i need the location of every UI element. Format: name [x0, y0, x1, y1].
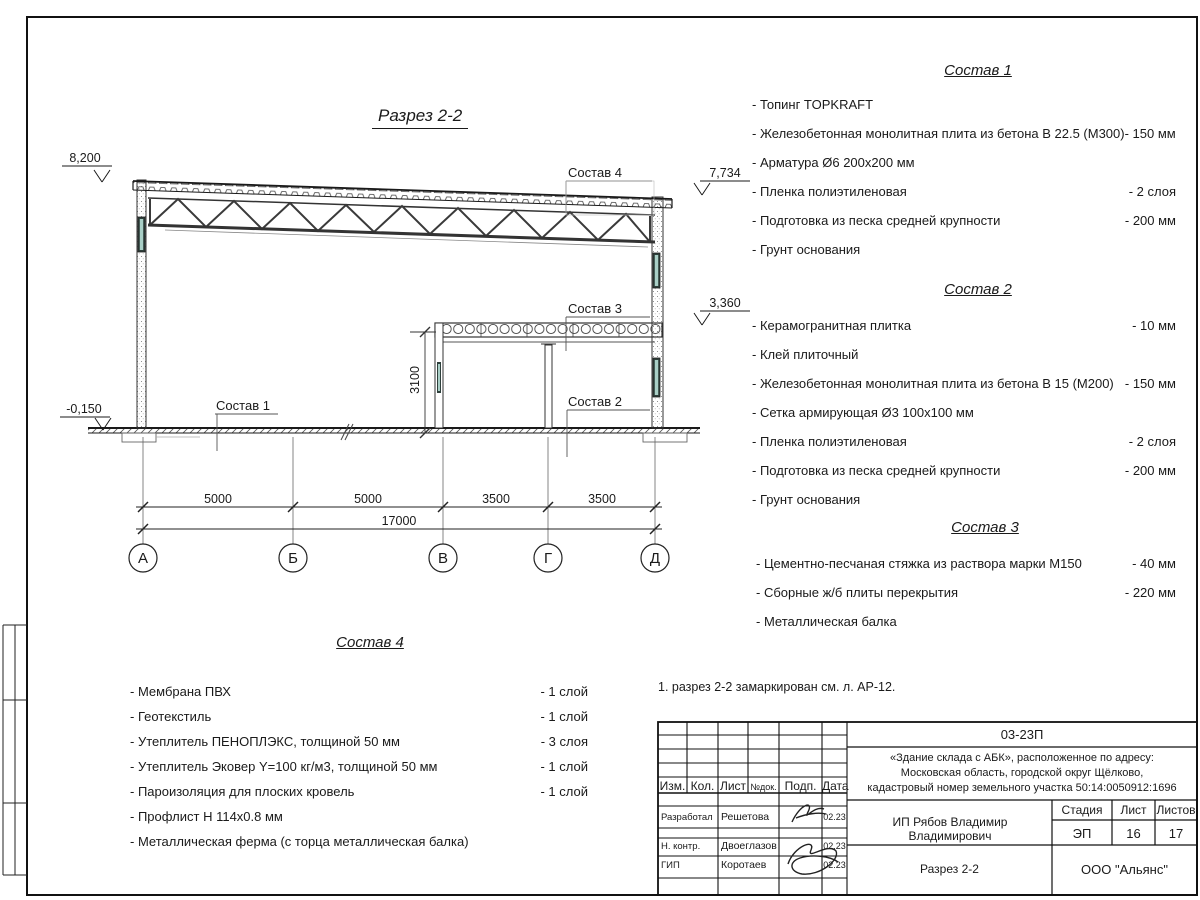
view-title: Разрез 2-2 [372, 106, 468, 129]
tb-col-podp: Подп. [779, 779, 822, 793]
list-item: - Железобетонная монолитная плита из бет… [752, 126, 1176, 141]
comp4-list: - Мембрана ПВХ- 1 слой - Геотекстиль- 1 … [130, 684, 588, 849]
dim-span1: 5000 [188, 492, 248, 506]
titleblock-sheets-value: 17 [1155, 826, 1197, 841]
section-view [60, 166, 750, 572]
list-item: - Керамогранитная плитка- 10 мм [752, 318, 1176, 333]
list-item: - Клей плиточный [752, 347, 1176, 362]
titleblock-project: «Здание склада с АБК», расположенное по … [852, 751, 1192, 796]
elevation-roof-right: 7,734 [700, 166, 750, 180]
dim-total: 17000 [369, 514, 429, 528]
axis-b: Б [279, 550, 307, 567]
titleblock-view: Разрез 2-2 [847, 862, 1052, 876]
tb-col-izm: Изм. [658, 779, 687, 793]
list-item: - Грунт основания [752, 242, 1176, 257]
list-item: - Мембрана ПВХ- 1 слой [130, 684, 588, 699]
dim-annex-height: 3100 [408, 350, 422, 410]
tb-row-name: Решетова [721, 811, 778, 823]
floor-slab [88, 424, 700, 442]
tb-row-date: 02.23 [822, 812, 847, 822]
tb-row-date: 02.23 [822, 841, 847, 851]
list-item: - Арматура Ø6 200х200 мм [752, 155, 1176, 170]
list-item: - Топинг TOPKRAFT [752, 97, 1176, 112]
tb-col-data: Дата [822, 779, 847, 793]
annex-column [545, 345, 552, 428]
list-item: - Сетка армирующая Ø3 100х100 мм [752, 405, 1176, 420]
left-wall [137, 180, 146, 428]
titleblock-client: ИП Рябов Владимир Владимирович [850, 815, 1050, 843]
list-item: - Сборные ж/б плиты перекрытия- 220 мм [756, 585, 1176, 600]
comp1-title: Состав 1 [908, 62, 1048, 79]
comp2-title: Состав 2 [908, 281, 1048, 298]
list-item: - Утеплитель Эковер Y=100 кг/м3, толщино… [130, 759, 588, 774]
callout-comp1: Состав 1 [201, 398, 285, 413]
right-wall [652, 197, 663, 428]
tb-row-name: Двоеглазов [721, 840, 778, 852]
list-item: - Грунт основания [752, 492, 1176, 507]
comp3-title: Состав 3 [915, 519, 1055, 536]
axis-a: А [129, 550, 157, 567]
callout-comp3: Состав 3 [553, 301, 637, 316]
callout-comp4: Состав 4 [553, 165, 637, 180]
tb-col-list: Лист [718, 779, 748, 793]
axis-bubbles [129, 544, 669, 572]
list-item: - Утеплитель ПЕНОПЛЭКС, толщиной 50 мм- … [130, 734, 588, 749]
list-item: - Геотекстиль- 1 слой [130, 709, 588, 724]
dim-span2: 5000 [338, 492, 398, 506]
comp1-list: - Топинг TOPKRAFT - Железобетонная монол… [752, 97, 1176, 257]
roof-deck [133, 181, 672, 208]
list-item: - Профлист Н 114х0.8 мм [130, 809, 588, 824]
list-item: - Железобетонная монолитная плита из бет… [752, 376, 1176, 391]
list-item: - Пленка полиэтиленовая- 2 слоя [752, 184, 1176, 199]
annex [435, 323, 662, 428]
dim-span4: 3500 [572, 492, 632, 506]
annex-hollow-core-slab [435, 323, 662, 337]
drawing-sheet: Разрез 2-2 8,200 7,734 3,360 -0,150 Сост… [0, 0, 1200, 900]
list-item: - Пленка полиэтиленовая- 2 слоя [752, 434, 1176, 449]
comp3-list: - Цементно-песчаная стяжка из раствора м… [756, 556, 1176, 629]
dim-span3: 3500 [466, 492, 526, 506]
comp2-list: - Керамогранитная плитка- 10 мм - Клей п… [752, 318, 1176, 507]
elevation-roof-left: 8,200 [60, 151, 110, 165]
list-item: - Цементно-песчаная стяжка из раствора м… [756, 556, 1176, 571]
tb-row-role: ГИП [661, 860, 717, 871]
titleblock-stage-label: Стадия [1052, 803, 1112, 817]
axis-d: Д [641, 550, 669, 567]
titleblock-sheet-label: Лист [1112, 803, 1155, 817]
list-item: - Металлическая балка [756, 614, 1176, 629]
list-item: - Пароизоляция для плоских кровель- 1 сл… [130, 784, 588, 799]
callout-comp2: Состав 2 [553, 394, 637, 409]
titleblock-code: 03-23П [847, 727, 1197, 742]
tb-row-role: Н. контр. [661, 841, 717, 852]
axis-v: В [429, 550, 457, 567]
list-item: - Металлическая ферма (с торца металличе… [130, 834, 588, 849]
titleblock-sheet-value: 16 [1112, 826, 1155, 841]
left-margin-stamps [3, 625, 27, 875]
titleblock-company: ООО "Альянс" [1052, 862, 1197, 877]
titleblock-stage-value: ЭП [1052, 826, 1112, 841]
titleblock-sheets-label: Листов [1155, 803, 1197, 817]
tb-row-name: Коротаев [721, 859, 778, 871]
tb-col-kol: Кол. [687, 779, 718, 793]
list-item: - Подготовка из песка средней крупности-… [752, 213, 1176, 228]
elevation-floor: -0,150 [58, 402, 110, 416]
comp4-title: Состав 4 [300, 634, 440, 651]
elevation-annex-roof: 3,360 [700, 296, 750, 310]
axis-g: Г [534, 550, 562, 567]
tb-row-role: Разработал [661, 812, 717, 823]
tb-row-date: 02.23 [822, 860, 847, 870]
tb-col-ndoc: №док. [748, 782, 779, 792]
list-item: - Подготовка из песка средней крупности-… [752, 463, 1176, 478]
sheet-note: 1. разрез 2-2 замаркирован см. л. АР-12. [658, 680, 1018, 694]
